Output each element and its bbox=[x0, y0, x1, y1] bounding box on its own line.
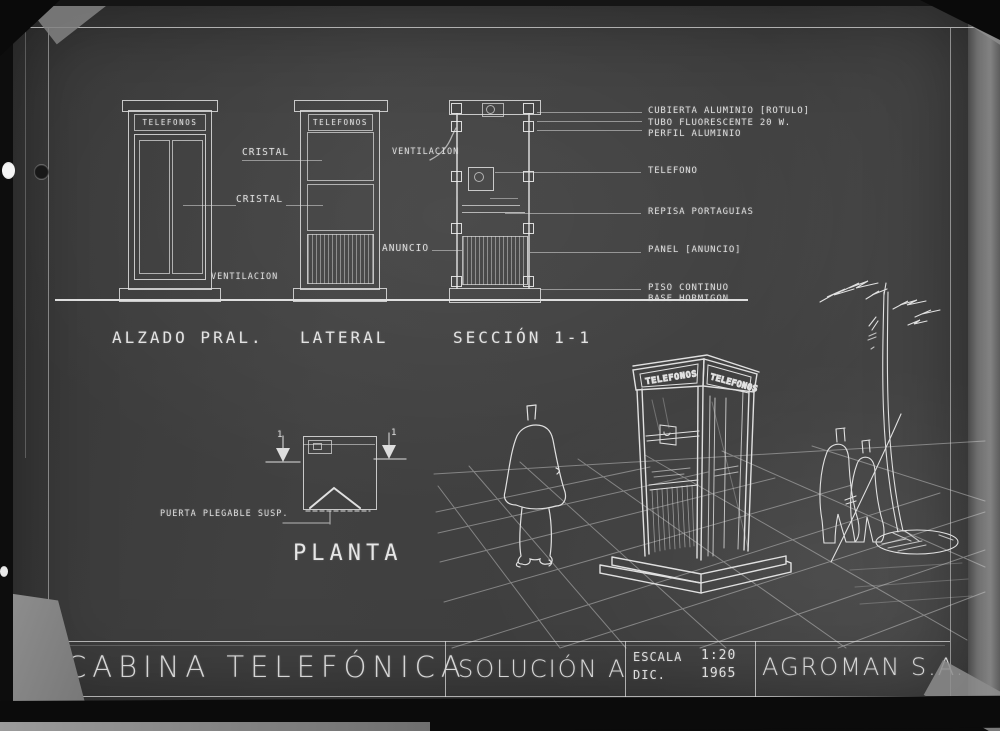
booth-base-step-2 bbox=[600, 561, 791, 593]
titleblock-project: CABINA TELEFÓNICA bbox=[66, 650, 467, 684]
photographed-blueprint: TELEFONOS TELEFONOS bbox=[0, 0, 1000, 731]
sketch-overlay: TELEFONOS TELEFONOS bbox=[0, 0, 1000, 731]
planta-section-cut-markers bbox=[266, 433, 406, 462]
titleblock-scale-value: 1:20 bbox=[701, 648, 736, 663]
edge-speck bbox=[0, 566, 8, 577]
perspective-booth bbox=[600, 355, 791, 593]
titleblock-divider-3 bbox=[755, 641, 756, 697]
booth-anuncio-hatch bbox=[652, 485, 694, 552]
titleblock-scale-label: ESCALA bbox=[633, 650, 682, 664]
titleblock-date-year: 1965 bbox=[701, 666, 736, 681]
ventilacion-leader-curve bbox=[430, 128, 456, 160]
booth-post-left bbox=[637, 389, 649, 556]
pedestrian-figures-right bbox=[820, 428, 884, 543]
booth-post-right bbox=[744, 392, 754, 551]
titleblock-solution: SOLUCIÓN A bbox=[458, 655, 627, 683]
planta-dimension-line bbox=[283, 511, 330, 524]
drawing-layer: TELEFONOS TELEFONOS bbox=[0, 0, 1000, 731]
photo-border-left bbox=[0, 0, 13, 731]
photo-border-top bbox=[0, 0, 1000, 6]
booth-door-rails bbox=[715, 466, 738, 476]
booth-door-mullions bbox=[708, 391, 743, 556]
booth-interior-shelf bbox=[652, 468, 690, 477]
tree-sketch bbox=[820, 281, 958, 562]
titleblock-inner-line bbox=[55, 645, 945, 646]
titleblock-date-month: DIC. bbox=[633, 668, 666, 682]
titleblock-top-line bbox=[50, 641, 950, 642]
planta-folding-door bbox=[310, 488, 360, 508]
punch-hole-dark bbox=[34, 164, 49, 180]
booth-interior-phone bbox=[660, 425, 676, 445]
booth-post-middle bbox=[697, 386, 703, 560]
table-surface-strip bbox=[0, 722, 430, 731]
punch-hole-white bbox=[2, 162, 15, 179]
